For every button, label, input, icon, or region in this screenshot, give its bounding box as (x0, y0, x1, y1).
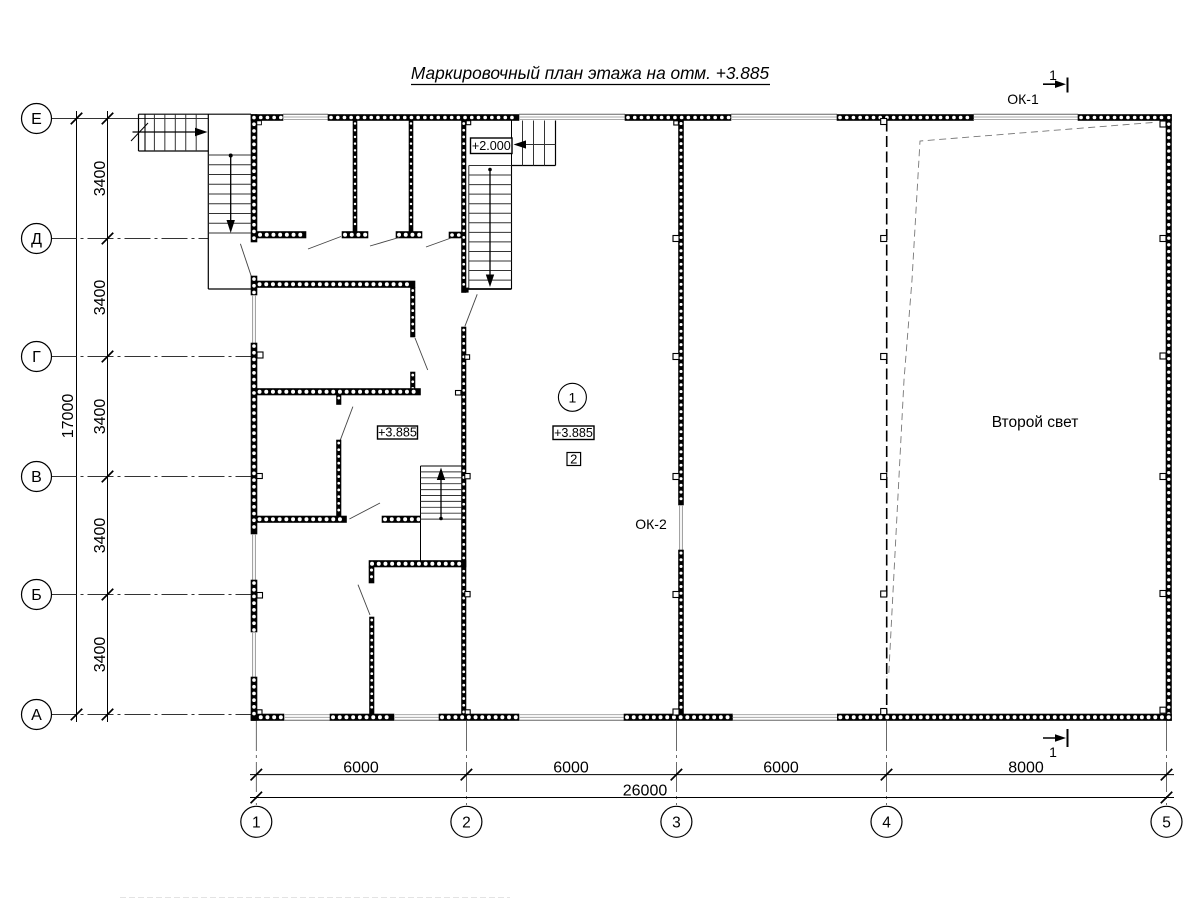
svg-text:5: 5 (1162, 814, 1171, 831)
svg-text:1: 1 (1049, 744, 1057, 760)
svg-text:3400: 3400 (92, 161, 109, 197)
svg-text:+3.885: +3.885 (378, 426, 417, 440)
svg-text:6000: 6000 (343, 759, 379, 776)
svg-text:Е: Е (31, 111, 42, 128)
svg-text:8000: 8000 (1008, 759, 1044, 776)
svg-text:26000: 26000 (623, 782, 668, 799)
svg-text:2: 2 (462, 814, 471, 831)
svg-text:+3.885: +3.885 (554, 426, 593, 440)
svg-text:1: 1 (1049, 67, 1057, 83)
svg-text:ОК-2: ОК-2 (635, 516, 667, 532)
svg-text:Б: Б (31, 587, 42, 604)
svg-text:17000: 17000 (60, 394, 77, 439)
svg-text:6000: 6000 (763, 759, 799, 776)
svg-text:В: В (31, 469, 42, 486)
svg-text:3: 3 (672, 814, 681, 831)
svg-text:3400: 3400 (92, 637, 109, 673)
svg-text:+2.000: +2.000 (472, 139, 511, 153)
svg-text:3400: 3400 (92, 280, 109, 316)
svg-text:6000: 6000 (553, 759, 589, 776)
svg-text:А: А (31, 707, 42, 724)
svg-text:3400: 3400 (92, 518, 109, 554)
svg-text:Второй свет: Второй свет (992, 414, 1079, 431)
svg-text:1: 1 (252, 814, 261, 831)
svg-text:Д: Д (31, 231, 42, 248)
svg-text:Маркировочный план этажа на от: Маркировочный план этажа на отм. +3.885 (411, 63, 770, 83)
svg-text:1: 1 (569, 389, 577, 405)
svg-text:ОК-1: ОК-1 (1007, 91, 1039, 107)
svg-text:2: 2 (570, 451, 577, 466)
svg-text:3400: 3400 (92, 399, 109, 435)
svg-text:Г: Г (32, 349, 41, 366)
svg-text:4: 4 (882, 814, 891, 831)
